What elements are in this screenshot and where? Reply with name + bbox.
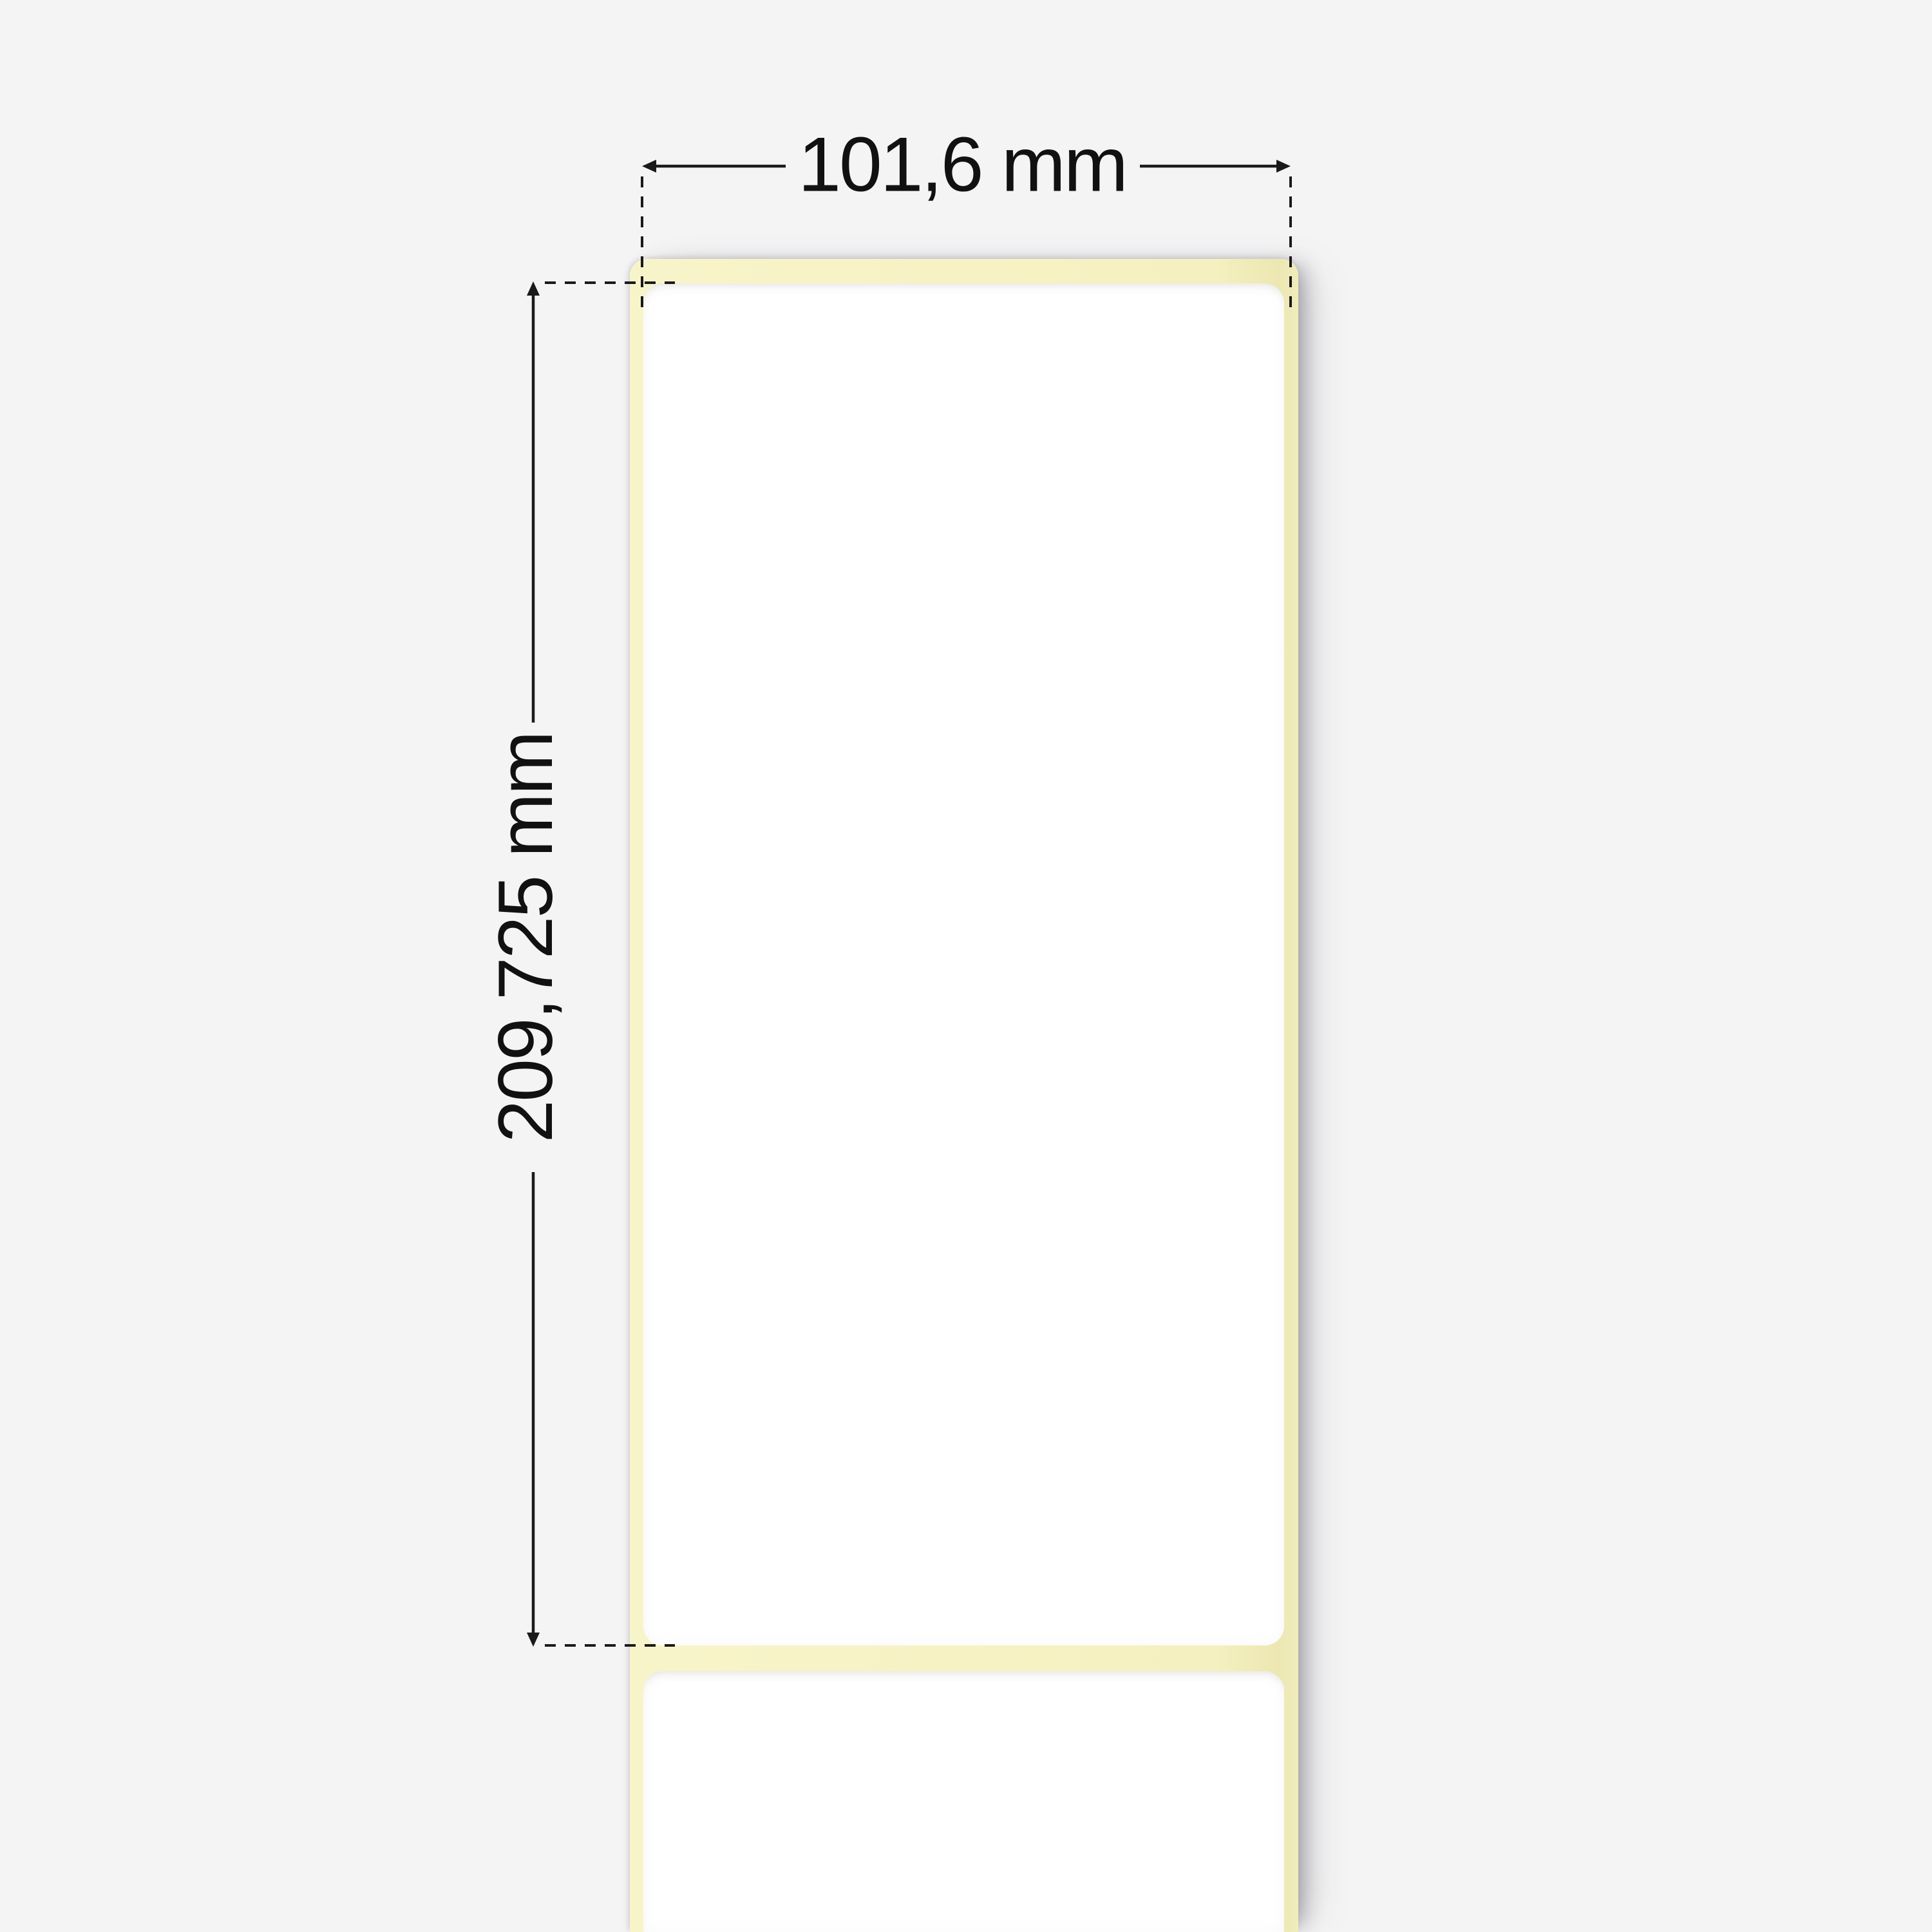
arrow-left-icon (642, 160, 656, 173)
arrow-right-icon (1276, 160, 1291, 173)
arrow-up-icon (527, 281, 540, 296)
width-dimension-label: 101,6 mm (798, 126, 1126, 204)
height-dimension-label: 209,725 mm (487, 732, 564, 1142)
arrow-down-icon (527, 1633, 540, 1647)
diagram-canvas: 101,6 mm 209,725 mm (0, 0, 1932, 1932)
label-sticker-top (643, 283, 1284, 1645)
label-sticker-next (643, 1671, 1284, 1932)
